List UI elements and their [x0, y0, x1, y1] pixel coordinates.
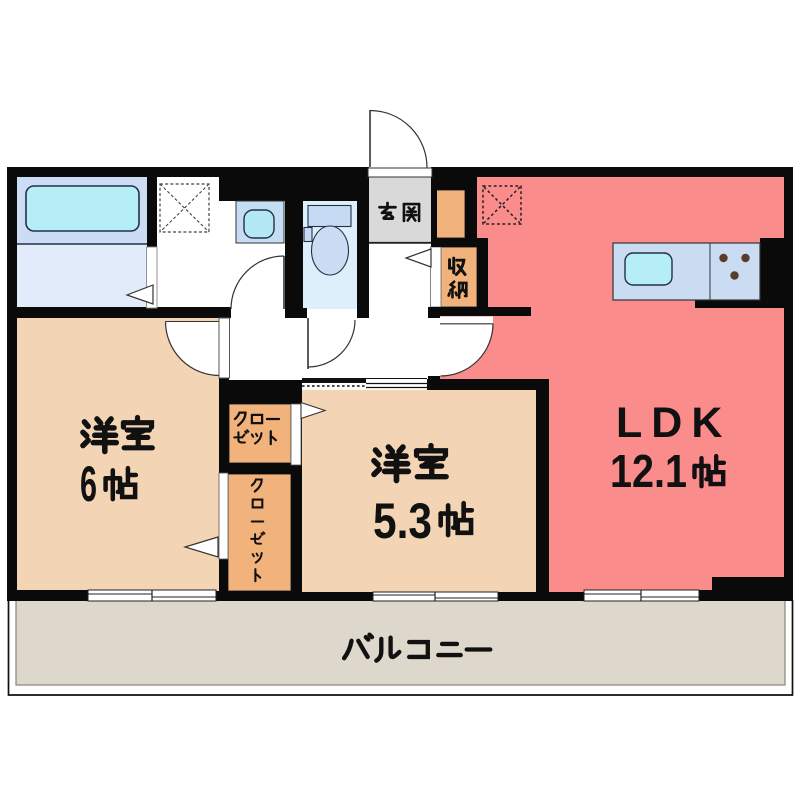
svg-text:5.3: 5.3: [373, 493, 432, 549]
svg-text:12.1: 12.1: [610, 445, 687, 497]
svg-text:LDK: LDK: [616, 399, 731, 447]
svg-text:6: 6: [80, 456, 97, 512]
